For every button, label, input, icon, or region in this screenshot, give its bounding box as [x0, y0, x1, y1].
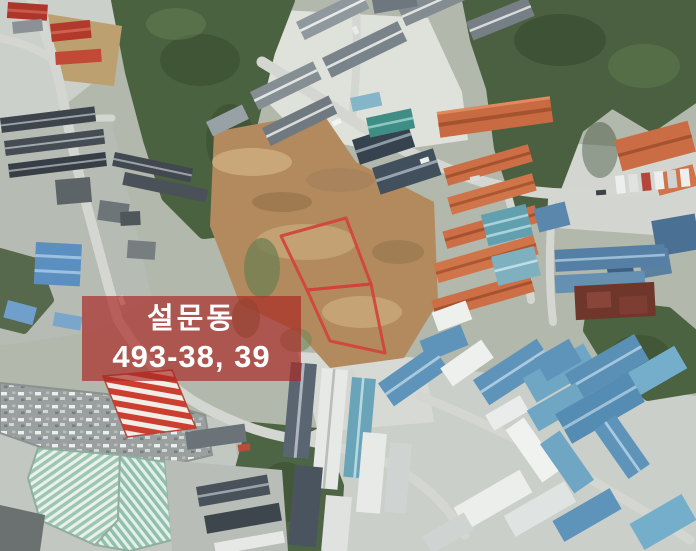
- aerial-imagery: [0, 0, 696, 551]
- parcel-label-lot-numbers: 493-38, 39: [112, 339, 270, 376]
- parcel-label: 설문동 493-38, 39: [82, 296, 301, 381]
- satellite-map: 설문동 493-38, 39: [0, 0, 696, 551]
- parcel-label-district: 설문동: [147, 302, 236, 336]
